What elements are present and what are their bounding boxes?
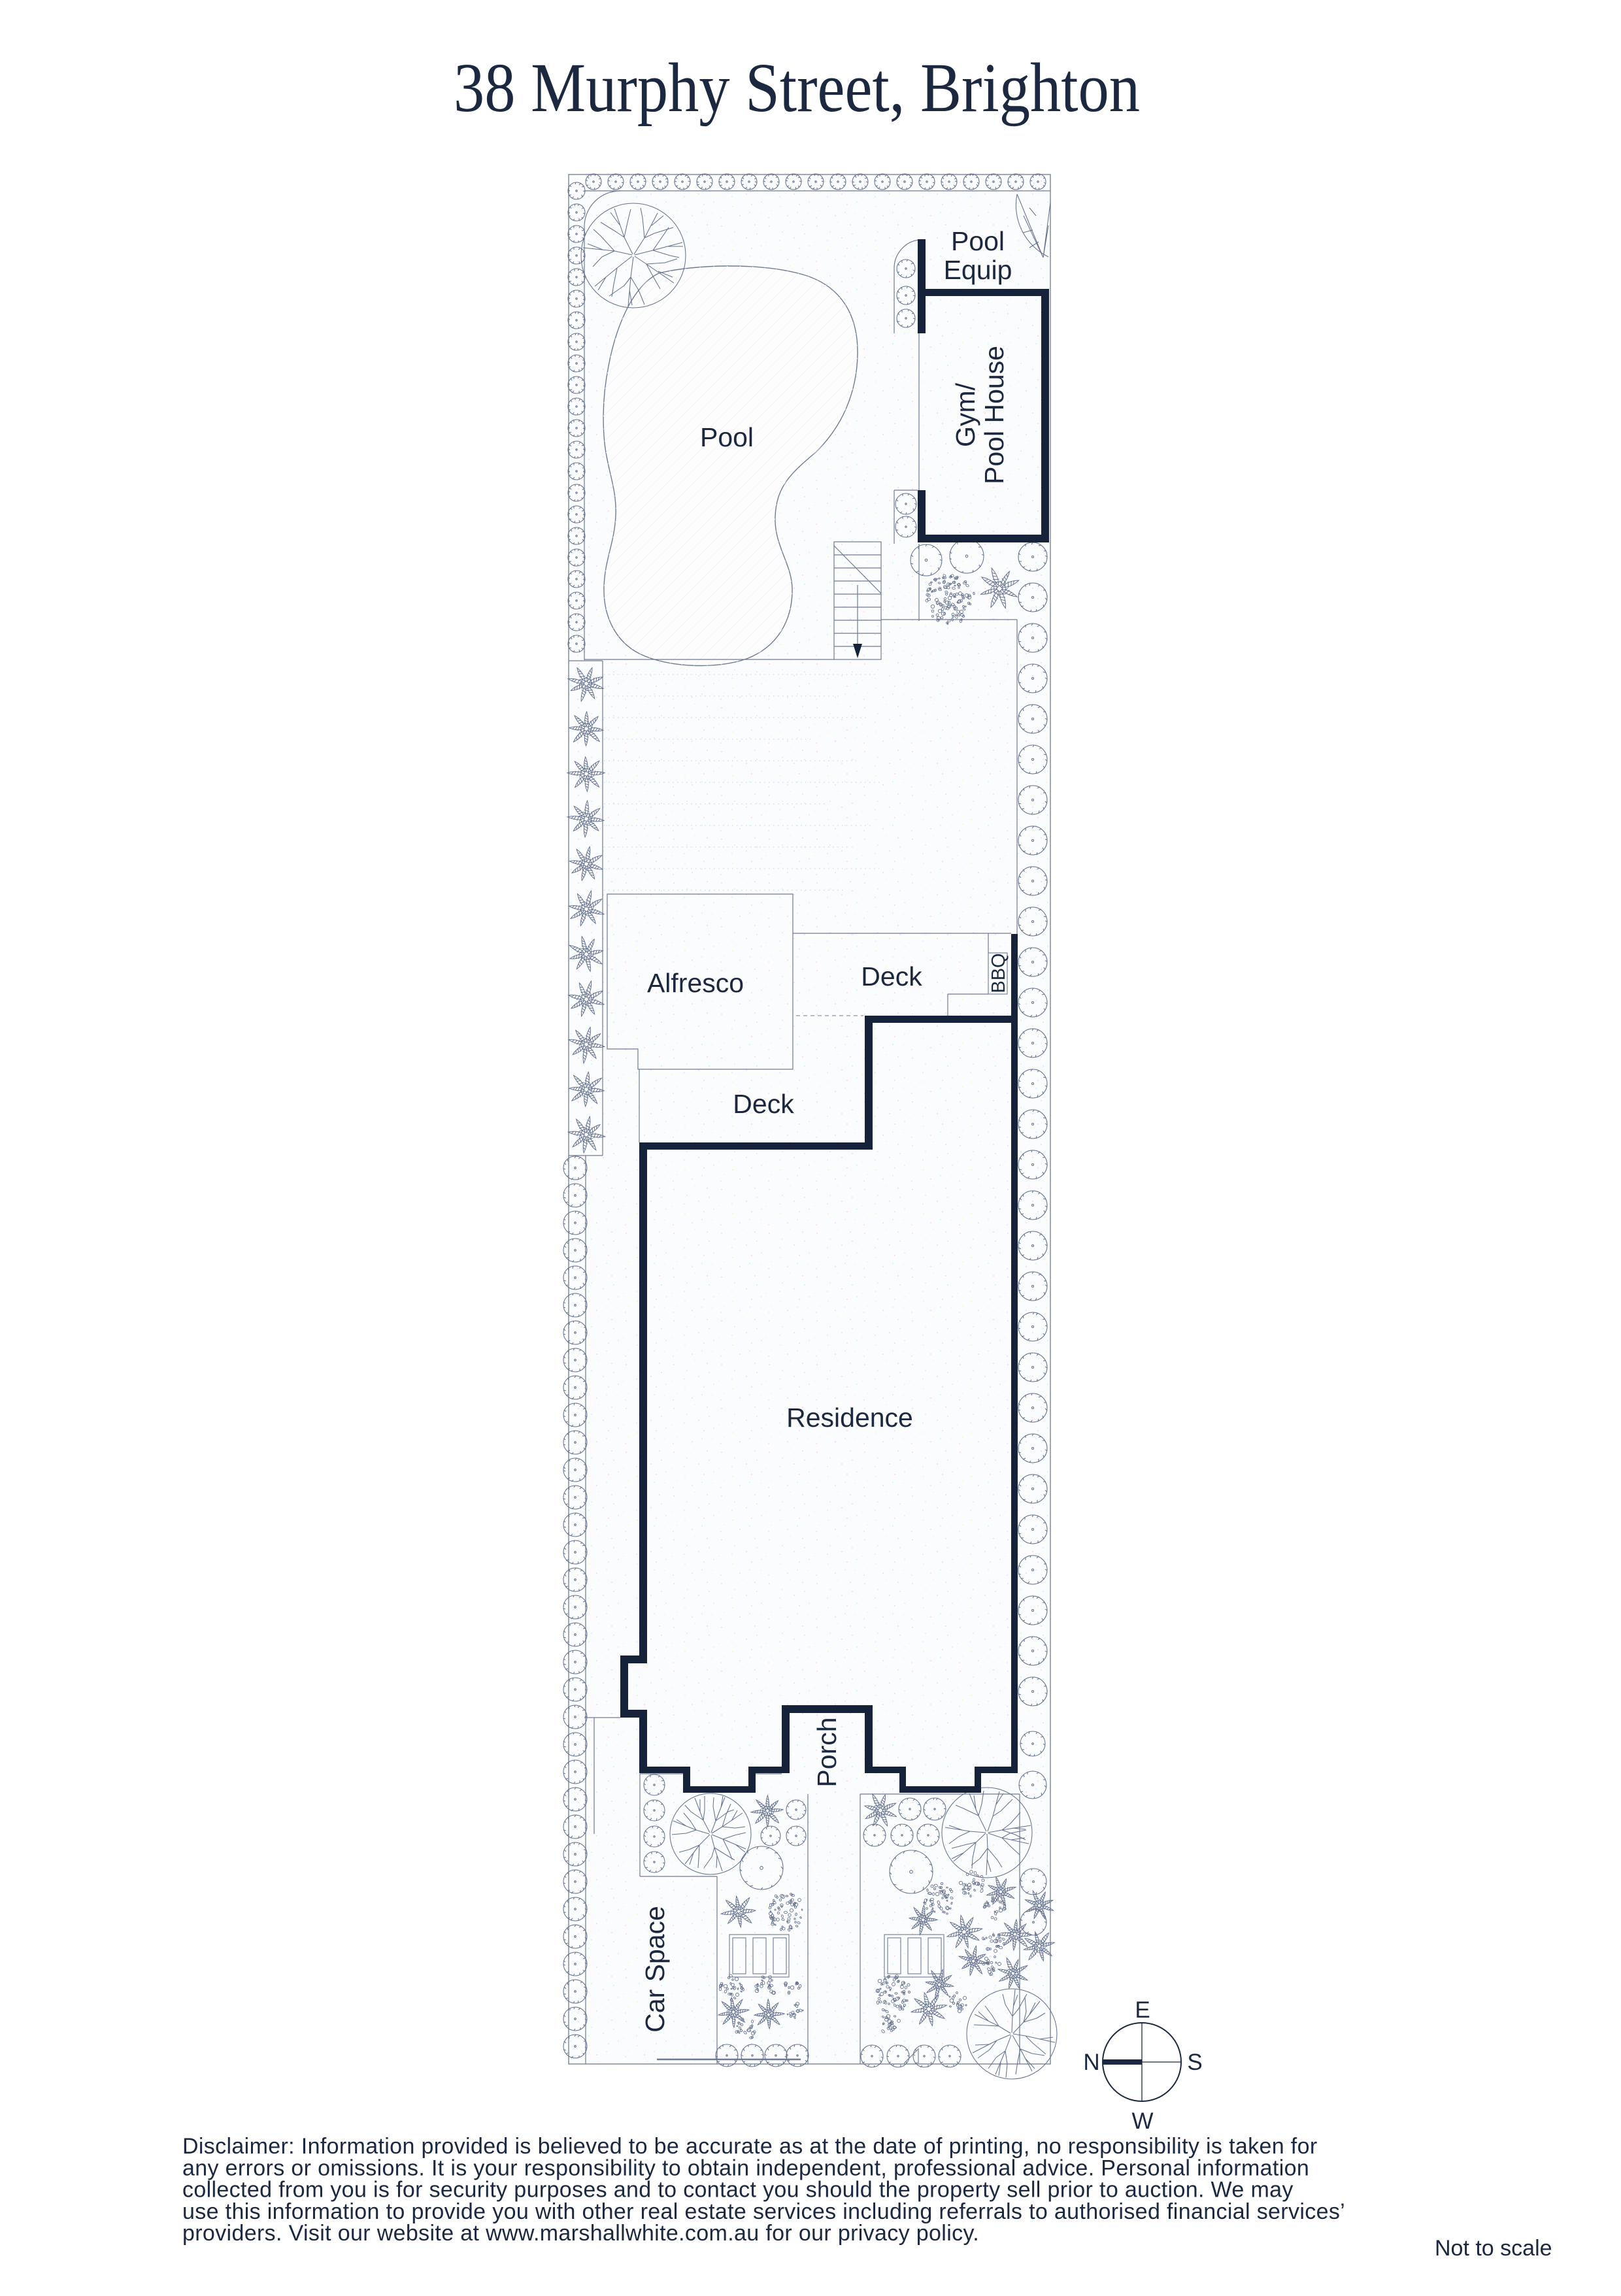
svg-text:Car Space: Car Space — [640, 1906, 670, 2033]
svg-text:S: S — [1187, 2050, 1202, 2075]
svg-text:Pool: Pool — [951, 226, 1005, 256]
svg-text:Not to scale: Not to scale — [1435, 2236, 1552, 2261]
svg-text:any errors or omissions. It is: any errors or omissions. It is your resp… — [182, 2155, 1309, 2180]
svg-text:Alfresco: Alfresco — [647, 968, 744, 998]
svg-text:N: N — [1083, 2050, 1099, 2075]
svg-text:W: W — [1131, 2108, 1153, 2134]
svg-text:38 Murphy Street, Brighton: 38 Murphy Street, Brighton — [454, 50, 1140, 127]
svg-text:BBQ: BBQ — [988, 953, 1009, 993]
svg-text:Deck: Deck — [733, 1089, 794, 1119]
svg-text:Pool: Pool — [700, 422, 754, 452]
svg-text:collected from you is for secu: collected from you is for security purpo… — [182, 2178, 1294, 2203]
svg-text:Disclaimer: Information provid: Disclaimer: Information provided is beli… — [182, 2134, 1318, 2159]
svg-text:Equip: Equip — [944, 255, 1012, 285]
svg-text:Deck: Deck — [861, 961, 922, 991]
svg-text:providers. Visit our website a: providers. Visit our website at www.mars… — [182, 2221, 979, 2246]
svg-text:Residence: Residence — [786, 1403, 913, 1433]
svg-text:use this information to provid: use this information to provide you with… — [182, 2199, 1345, 2224]
svg-text:E: E — [1135, 1997, 1150, 2023]
svg-text:Porch: Porch — [812, 1717, 842, 1787]
